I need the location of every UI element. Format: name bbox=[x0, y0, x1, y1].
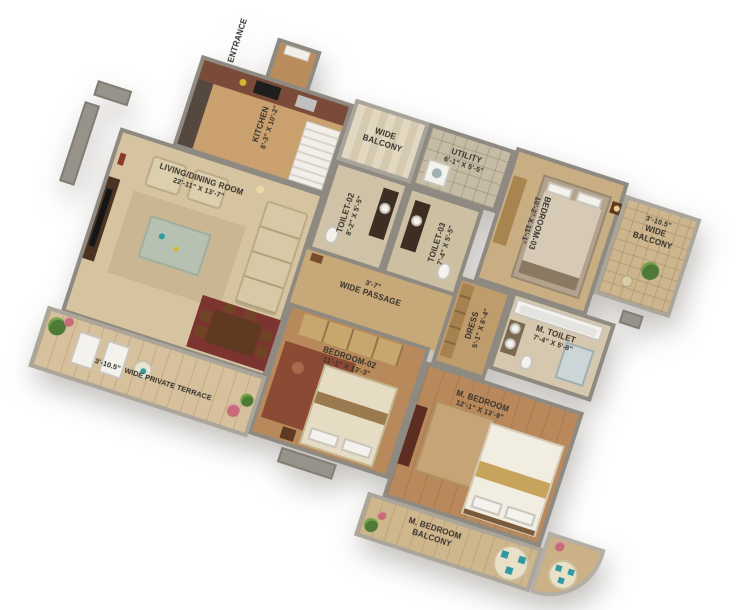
flower-pot bbox=[553, 540, 566, 553]
entrance-name: ENTRANCE bbox=[226, 17, 250, 64]
balcony-chair bbox=[505, 566, 514, 575]
round-mat bbox=[544, 556, 582, 594]
room-label-entrance: ENTRANCE bbox=[226, 17, 250, 64]
room-label-wide-balcony: WIDE BALCONY bbox=[347, 119, 420, 160]
terrace-name: WIDE PRIVATE TERRACE bbox=[123, 366, 213, 403]
floor-plan-render: 3'-7" WIDE PASSAGE ENTRANCE KITCHEN 8'-3… bbox=[0, 0, 746, 610]
wall-segment bbox=[59, 101, 100, 186]
round-mat bbox=[488, 541, 533, 586]
tv bbox=[89, 188, 113, 247]
bedside-table bbox=[279, 426, 296, 442]
apartment-plan: 3'-7" WIDE PASSAGE ENTRANCE KITCHEN 8'-3… bbox=[23, 0, 723, 610]
room-label-toilet-03: TOILET-03 7'-4" X 5'-5" bbox=[426, 221, 457, 266]
bed-throw bbox=[475, 461, 550, 499]
potted-plant bbox=[639, 260, 662, 283]
room-label-toilet-02: TOILET-02 8'-2" X 5'-5" bbox=[335, 192, 366, 237]
wide-balcony-name: WIDE BALCONY bbox=[359, 123, 409, 157]
washing-machine-door bbox=[431, 167, 444, 180]
potted-plant bbox=[362, 516, 380, 534]
balcony-chair bbox=[518, 556, 527, 565]
pillow bbox=[341, 438, 374, 460]
balcony-chair bbox=[500, 550, 509, 559]
decor-cup bbox=[158, 233, 166, 241]
balcony-chair bbox=[555, 565, 563, 573]
stool bbox=[619, 274, 634, 289]
wall-art bbox=[117, 153, 126, 166]
wc bbox=[518, 353, 535, 372]
pillow bbox=[307, 427, 340, 449]
decor-cup bbox=[173, 246, 179, 252]
room-m-toilet: M. TOILET 7'-4" X 5'-8" bbox=[488, 291, 616, 402]
terrace-dims: 3'-10.5" bbox=[94, 356, 122, 373]
room-label-balcony-right: 3'-10.5" WIDE BALCONY bbox=[616, 207, 694, 258]
flower-pot bbox=[376, 510, 387, 521]
balcony-chair bbox=[567, 569, 575, 577]
wall-segment bbox=[619, 309, 644, 329]
bed-throw bbox=[314, 391, 388, 425]
kitchen-side-counter bbox=[177, 79, 213, 149]
entrance-door bbox=[283, 44, 311, 62]
balcony-chair bbox=[557, 577, 565, 585]
wall-segment bbox=[93, 80, 132, 106]
room-label-kitchen: KITCHEN 8'-3" X 10'-2" bbox=[250, 101, 283, 150]
